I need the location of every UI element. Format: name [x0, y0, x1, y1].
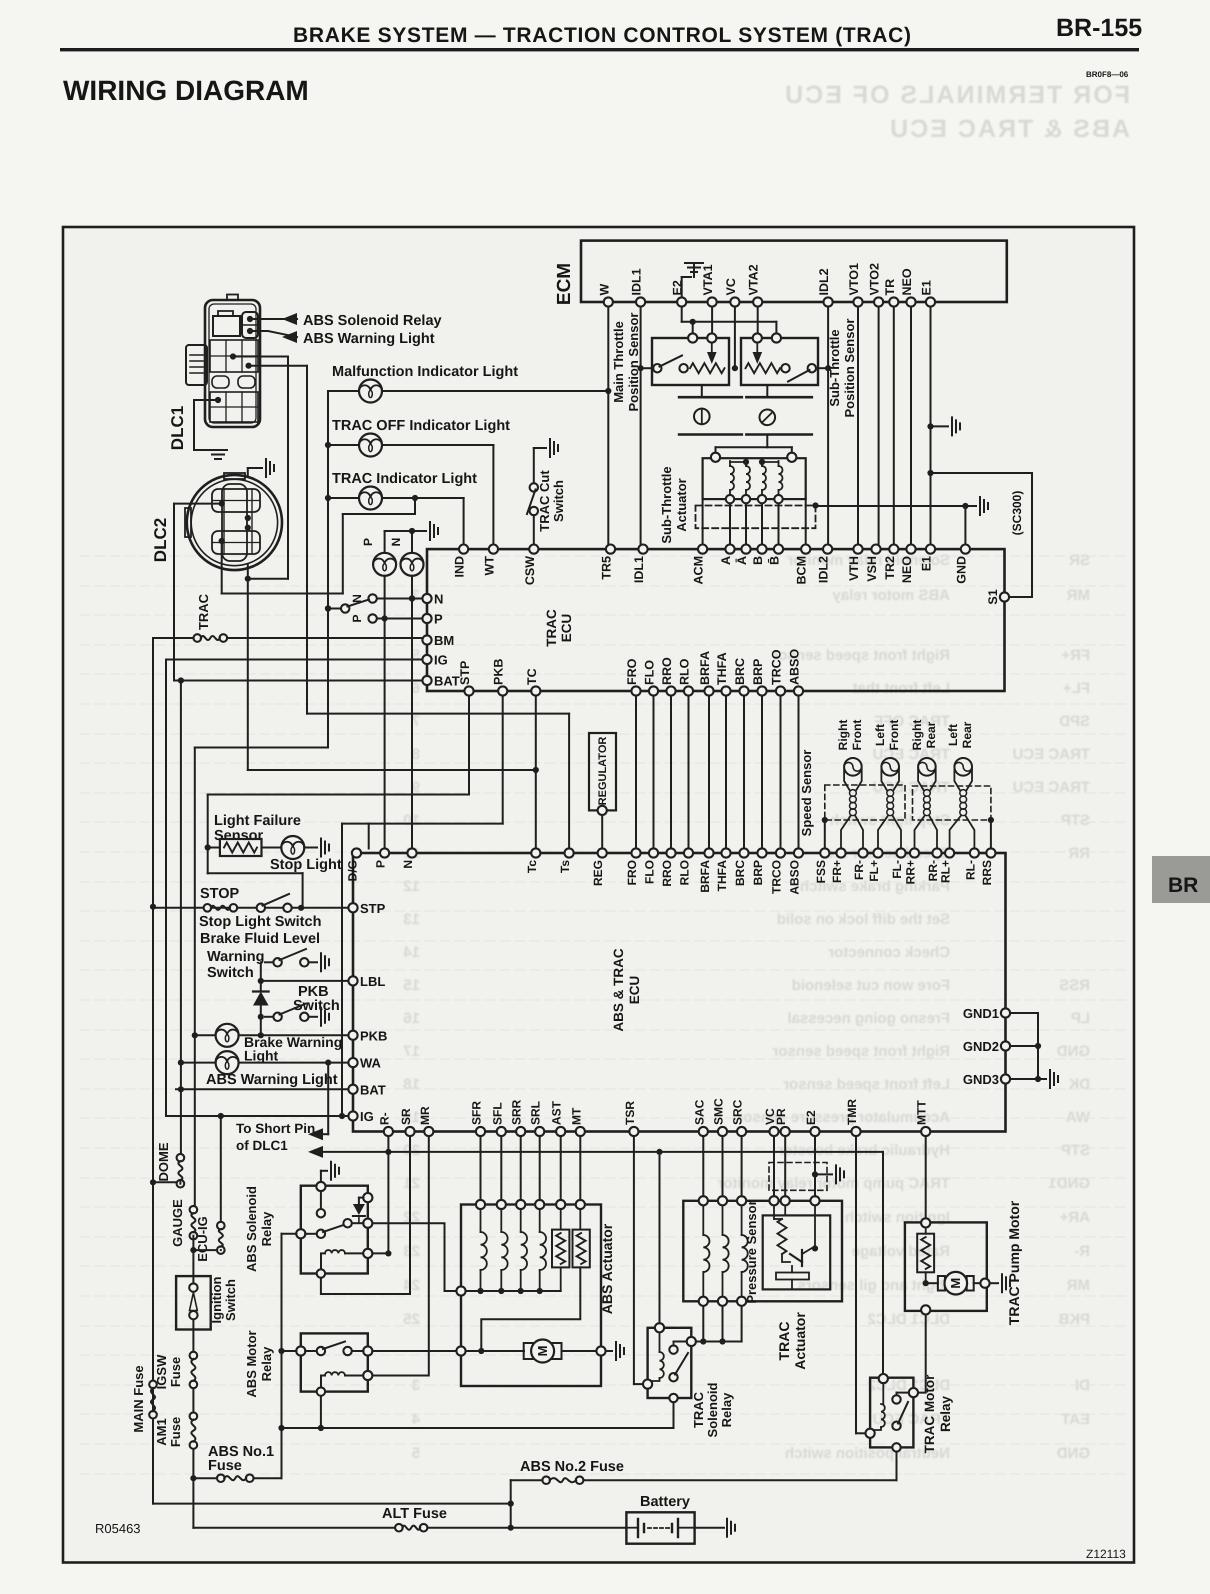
- svg-text:TRAC: TRAC: [691, 1391, 706, 1428]
- svg-text:ECU: ECU: [627, 976, 642, 1005]
- svg-text:VTA1: VTA1: [701, 264, 715, 295]
- svg-text:Position Sensor: Position Sensor: [626, 313, 641, 412]
- svg-text:BR: BR: [1168, 874, 1198, 897]
- svg-text:N: N: [401, 860, 415, 869]
- svg-text:ABS Motor: ABS Motor: [244, 1330, 259, 1397]
- svg-text:Set the diff lock on solid: Set the diff lock on solid: [777, 911, 950, 928]
- svg-text:FL+: FL+: [1063, 680, 1090, 697]
- svg-text:B: B: [751, 556, 765, 565]
- svg-text:Solenoid: Solenoid: [705, 1382, 720, 1437]
- svg-text:VSH: VSH: [865, 556, 879, 582]
- svg-text:PR: PR: [774, 1108, 788, 1125]
- svg-text:IDL1: IDL1: [630, 268, 644, 295]
- svg-text:B̄: B̄: [767, 556, 781, 565]
- svg-text:ABS No.2 Fuse: ABS No.2 Fuse: [520, 1459, 624, 1475]
- svg-text:Right front speed sensor: Right front speed sensor: [772, 1043, 950, 1060]
- svg-text:Battery: Battery: [640, 1494, 690, 1510]
- svg-text:WT: WT: [482, 556, 496, 576]
- svg-text:DLC2: DLC2: [151, 518, 170, 562]
- svg-text:BRAKE SYSTEM — TRACTION CONTRO: BRAKE SYSTEM — TRACTION CONTROL SYSTEM (…: [293, 24, 911, 47]
- svg-text:BRFA: BRFA: [698, 860, 712, 893]
- svg-text:TSR: TSR: [623, 1101, 637, 1125]
- svg-text:Light Failure: Light Failure: [214, 813, 301, 829]
- svg-text:RR: RR: [1068, 845, 1090, 862]
- svg-text:17: 17: [403, 1043, 420, 1060]
- svg-text:RR+: RR+: [904, 860, 918, 884]
- svg-text:IG: IG: [434, 653, 448, 668]
- svg-text:Warning: Warning: [207, 949, 264, 965]
- svg-text:RL+: RL+: [939, 860, 953, 883]
- svg-text:Relay: Relay: [938, 1395, 953, 1432]
- svg-text:CSW: CSW: [523, 556, 537, 585]
- svg-text:E2: E2: [804, 1110, 818, 1125]
- svg-text:SFR: SFR: [470, 1101, 484, 1125]
- svg-text:Hydraulic brake booster: Hydraulic brake booster: [778, 1142, 950, 1159]
- svg-text:TRAC ECU: TRAC ECU: [1013, 746, 1091, 763]
- svg-text:ECM: ECM: [554, 263, 575, 305]
- svg-text:Fuse: Fuse: [208, 1458, 242, 1474]
- svg-text:TR5: TR5: [600, 556, 614, 580]
- svg-text:TR: TR: [883, 279, 897, 296]
- svg-text:Brake Fluid Level: Brake Fluid Level: [200, 931, 320, 947]
- svg-text:VTA2: VTA2: [747, 264, 761, 295]
- svg-text:Relay: Relay: [719, 1392, 734, 1427]
- svg-text:WIRING DIAGRAM: WIRING DIAGRAM: [63, 75, 309, 106]
- svg-text:AST: AST: [550, 1100, 564, 1125]
- svg-text:TRAC: TRAC: [776, 1322, 792, 1361]
- svg-text:RRS: RRS: [980, 860, 994, 885]
- svg-text:Rear: Rear: [924, 721, 938, 748]
- svg-text:MTT: MTT: [915, 1100, 929, 1125]
- svg-text:P: P: [374, 860, 388, 868]
- svg-text:Position Sensor: Position Sensor: [842, 319, 857, 418]
- svg-text:BAT: BAT: [434, 674, 460, 689]
- svg-text:IG: IG: [360, 1109, 374, 1124]
- svg-text:Check connector: Check connector: [828, 944, 950, 961]
- svg-text:ABSO: ABSO: [788, 860, 802, 895]
- svg-text:To Short Pin: To Short Pin: [236, 1121, 315, 1136]
- svg-text:BRFA: BRFA: [698, 651, 712, 685]
- svg-text:Fresno going necessal: Fresno going necessal: [787, 1010, 950, 1027]
- svg-text:ABS Warning Light: ABS Warning Light: [303, 331, 435, 347]
- svg-text:VTO1: VTO1: [847, 263, 861, 295]
- svg-text:RL-: RL-: [963, 860, 977, 880]
- svg-text:D/G: D/G: [346, 860, 360, 881]
- svg-text:RRO: RRO: [660, 657, 674, 685]
- svg-text:TRAC Motor: TRAC Motor: [922, 1374, 937, 1453]
- svg-text:BM: BM: [434, 633, 454, 648]
- svg-text:Switch: Switch: [207, 965, 254, 981]
- svg-text:IDL2: IDL2: [817, 556, 831, 583]
- svg-text:E1: E1: [920, 556, 934, 571]
- svg-text:ECU: ECU: [559, 614, 574, 643]
- svg-text:SRR: SRR: [510, 1099, 524, 1125]
- svg-text:NEO: NEO: [900, 268, 914, 295]
- svg-text:RLO: RLO: [678, 658, 692, 685]
- svg-text:S1: S1: [986, 589, 1000, 604]
- svg-text:BRP: BRP: [751, 659, 765, 685]
- svg-text:23: 23: [403, 1243, 420, 1260]
- svg-text:IDL1: IDL1: [632, 556, 646, 583]
- svg-text:15: 15: [403, 977, 420, 994]
- svg-text:FLO: FLO: [643, 660, 657, 685]
- svg-text:18: 18: [403, 1076, 420, 1093]
- svg-text:FRO: FRO: [625, 658, 639, 685]
- svg-text:Pressure Sensor: Pressure Sensor: [744, 1200, 759, 1303]
- svg-text:ABS Solenoid: ABS Solenoid: [244, 1186, 259, 1272]
- svg-text:W: W: [597, 284, 611, 296]
- svg-text:SRC: SRC: [731, 1099, 745, 1125]
- svg-text:Fuse: Fuse: [168, 1357, 183, 1387]
- svg-text:Stop Light: Stop Light: [270, 857, 342, 873]
- svg-text:TRAC Pump Motor: TRAC Pump Motor: [1006, 1200, 1022, 1325]
- svg-text:FOR TERMINALS OF ECU: FOR TERMINALS OF ECU: [783, 81, 1130, 109]
- svg-text:M: M: [535, 1346, 550, 1357]
- svg-text:SR: SR: [399, 1108, 413, 1125]
- svg-text:AM1: AM1: [154, 1418, 169, 1445]
- svg-text:THFA: THFA: [715, 860, 729, 892]
- svg-text:M: M: [948, 1278, 963, 1289]
- svg-text:GND: GND: [954, 556, 968, 584]
- svg-text:BRP: BRP: [751, 860, 765, 885]
- svg-text:BRC: BRC: [733, 658, 747, 685]
- svg-text:TR2: TR2: [883, 556, 897, 580]
- svg-text:ABS & TRAC: ABS & TRAC: [611, 948, 626, 1031]
- svg-text:Left front that: Left front that: [853, 680, 950, 697]
- svg-text:24: 24: [403, 1277, 420, 1294]
- svg-text:ABS Solenoid Relay: ABS Solenoid Relay: [303, 313, 442, 329]
- svg-text:Light: Light: [244, 1048, 279, 1064]
- svg-text:PKB: PKB: [360, 1028, 387, 1043]
- svg-text:VTH: VTH: [847, 556, 861, 581]
- svg-text:of DLC1: of DLC1: [236, 1138, 288, 1153]
- svg-text:FR+: FR+: [1061, 647, 1090, 664]
- svg-text:Actuator: Actuator: [674, 478, 689, 531]
- svg-text:16: 16: [403, 1010, 420, 1027]
- svg-text:GND3: GND3: [963, 1072, 999, 1087]
- svg-text:GND: GND: [1057, 1043, 1091, 1060]
- svg-text:ACM: ACM: [692, 556, 706, 584]
- svg-text:NEO: NEO: [900, 556, 914, 583]
- svg-text:R05463: R05463: [95, 1521, 141, 1536]
- svg-text:LP: LP: [1071, 1010, 1090, 1027]
- svg-text:N: N: [389, 538, 403, 547]
- svg-text:THFA: THFA: [715, 652, 729, 685]
- svg-text:SRL: SRL: [529, 1101, 543, 1125]
- svg-text:Right: Right: [910, 720, 924, 751]
- svg-text:Main Throttle: Main Throttle: [611, 321, 626, 403]
- svg-text:FSS: FSS: [814, 860, 828, 883]
- svg-text:VTO2: VTO2: [868, 263, 882, 295]
- svg-text:RSS: RSS: [1059, 977, 1090, 994]
- svg-text:SAC: SAC: [692, 1099, 706, 1125]
- svg-text:Left: Left: [873, 724, 887, 746]
- svg-text:P: P: [434, 612, 443, 627]
- svg-text:GND1: GND1: [963, 1006, 999, 1021]
- svg-text:Fore won cut selenoid: Fore won cut selenoid: [792, 977, 950, 994]
- svg-text:Relay: Relay: [259, 1211, 274, 1246]
- svg-text:ABSO: ABSO: [788, 649, 802, 685]
- svg-text:SFL: SFL: [490, 1102, 504, 1125]
- svg-text:FRO: FRO: [625, 860, 639, 885]
- svg-text:R-: R-: [1074, 1243, 1090, 1260]
- svg-text:Ts: Ts: [558, 860, 572, 873]
- svg-text:FLO: FLO: [643, 860, 657, 884]
- svg-text:TRAC OFF Indicator Light: TRAC OFF Indicator Light: [332, 418, 510, 434]
- svg-text:REGULATOR: REGULATOR: [597, 737, 609, 806]
- svg-text:FR-: FR-: [852, 860, 866, 880]
- svg-text:TRCO: TRCO: [770, 649, 784, 685]
- svg-text:Tc: Tc: [525, 860, 539, 873]
- svg-text:BR0F8—06: BR0F8—06: [1086, 70, 1129, 79]
- svg-text:Right: Right: [836, 720, 850, 751]
- svg-text:SMC: SMC: [712, 1098, 726, 1125]
- svg-text:MR: MR: [1067, 1277, 1090, 1294]
- svg-text:SR: SR: [1069, 552, 1090, 569]
- svg-text:FR+: FR+: [830, 860, 844, 883]
- svg-text:GAUGE: GAUGE: [170, 1199, 185, 1247]
- svg-text:(SC300): (SC300): [1010, 491, 1024, 536]
- svg-text:TRAC Cut: TRAC Cut: [537, 470, 552, 532]
- svg-text:E1: E1: [920, 280, 934, 295]
- svg-text:12: 12: [403, 878, 420, 895]
- svg-text:TRCO: TRCO: [770, 860, 784, 894]
- svg-text:TRAC: TRAC: [544, 609, 559, 647]
- svg-text:Rear: Rear: [960, 721, 974, 748]
- svg-text:Rated voltage: Rated voltage: [852, 1243, 950, 1260]
- svg-text:20: 20: [403, 1142, 420, 1159]
- svg-text:5: 5: [412, 1445, 420, 1462]
- svg-text:RLO: RLO: [678, 860, 692, 885]
- svg-text:STP: STP: [458, 661, 472, 685]
- svg-text:ECU-IG: ECU-IG: [195, 1216, 210, 1262]
- svg-text:BRC: BRC: [733, 860, 747, 886]
- svg-text:LBL: LBL: [360, 974, 385, 989]
- svg-text:Actuator: Actuator: [792, 1312, 808, 1370]
- svg-text:RRO: RRO: [660, 860, 674, 887]
- svg-text:GND: GND: [1057, 1445, 1091, 1462]
- svg-text:MR: MR: [1067, 587, 1090, 604]
- svg-text:STOP: STOP: [200, 886, 240, 902]
- svg-text:Front: Front: [850, 720, 864, 751]
- svg-text:AR+: AR+: [1059, 1209, 1090, 1226]
- svg-text:STP: STP: [1061, 1142, 1090, 1159]
- svg-text:Z12113: Z12113: [1086, 1547, 1126, 1561]
- svg-text:Switch: Switch: [223, 1279, 238, 1321]
- svg-text:P: P: [361, 538, 375, 546]
- svg-text:ABS motor relay: ABS motor relay: [832, 587, 950, 604]
- svg-text:IND: IND: [453, 556, 467, 578]
- svg-text:FL+: FL+: [867, 860, 881, 882]
- svg-text:TMR: TMR: [845, 1099, 859, 1125]
- svg-text:BR-155: BR-155: [1056, 14, 1142, 42]
- svg-text:Stop Light Switch: Stop Light Switch: [199, 914, 321, 930]
- svg-text:TRAC Indicator Light: TRAC Indicator Light: [332, 471, 477, 487]
- svg-text:STP: STP: [360, 901, 386, 916]
- svg-text:P: P: [350, 614, 364, 622]
- svg-text:BCM: BCM: [795, 556, 809, 584]
- svg-text:TRAC: TRAC: [196, 593, 211, 630]
- svg-text:SPD: SPD: [1059, 713, 1090, 730]
- svg-text:DLC1: DLC1: [168, 406, 187, 450]
- svg-text:Ā: Ā: [735, 556, 749, 565]
- svg-text:ABS & TRAC ECU: ABS & TRAC ECU: [888, 115, 1130, 143]
- svg-text:MT: MT: [569, 1107, 583, 1125]
- svg-text:TC: TC: [525, 668, 539, 685]
- svg-text:Switch: Switch: [551, 480, 566, 522]
- svg-text:Left: Left: [946, 724, 960, 746]
- svg-text:ALT Fuse: ALT Fuse: [382, 1506, 447, 1522]
- svg-text:STP: STP: [1061, 812, 1090, 829]
- svg-text:Relay: Relay: [259, 1346, 274, 1381]
- svg-text:REG: REG: [591, 860, 605, 886]
- svg-text:FL-: FL-: [890, 860, 904, 879]
- svg-text:N: N: [434, 592, 443, 607]
- svg-text:WA: WA: [360, 1056, 382, 1071]
- svg-text:R-: R-: [377, 1112, 391, 1125]
- svg-text:MR: MR: [418, 1106, 432, 1125]
- svg-text:Left front speed sensor: Left front speed sensor: [783, 1076, 950, 1093]
- svg-text:13: 13: [403, 911, 420, 928]
- svg-text:DK: DK: [1068, 1076, 1090, 1093]
- svg-text:PKB: PKB: [492, 659, 506, 685]
- svg-text:Front: Front: [887, 720, 901, 751]
- svg-text:DOME: DOME: [156, 1142, 171, 1181]
- svg-text:VC: VC: [724, 278, 738, 295]
- svg-text:Fuse: Fuse: [168, 1417, 183, 1447]
- svg-text:Sensor: Sensor: [214, 828, 264, 844]
- svg-text:GND2: GND2: [963, 1039, 999, 1054]
- svg-text:IDL2: IDL2: [817, 268, 831, 295]
- svg-text:14: 14: [403, 944, 420, 961]
- svg-text:A: A: [719, 556, 733, 565]
- svg-text:Malfunction Indicator Light: Malfunction Indicator Light: [332, 364, 518, 380]
- svg-text:Sub-Throttle: Sub-Throttle: [659, 466, 674, 543]
- svg-text:BAT: BAT: [360, 1082, 386, 1097]
- svg-text:MAIN Fuse: MAIN Fuse: [131, 1365, 146, 1432]
- svg-text:Speed Sensor: Speed Sensor: [799, 750, 814, 837]
